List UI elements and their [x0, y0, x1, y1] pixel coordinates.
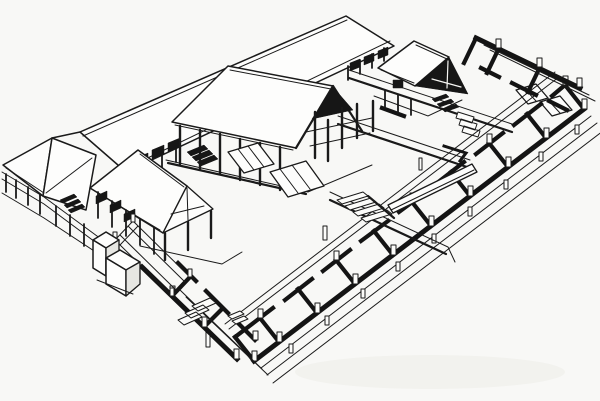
drawing-canvas: [0, 0, 600, 401]
paper-smudge: [295, 355, 565, 389]
compound-axonometric-drawing: [0, 0, 600, 401]
wall-window: [393, 80, 403, 88]
